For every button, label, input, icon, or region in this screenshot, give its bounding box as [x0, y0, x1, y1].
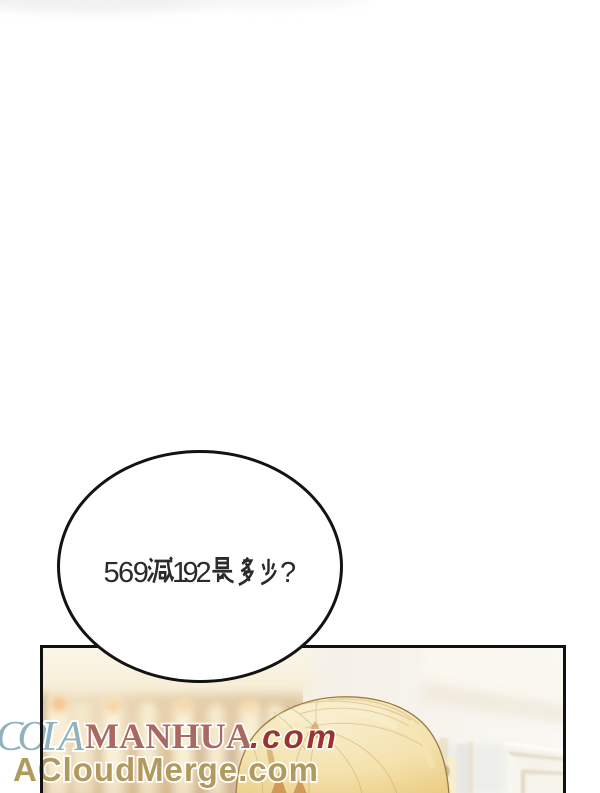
- svg-text:192: 192: [172, 557, 212, 589]
- svg-text:569: 569: [104, 557, 149, 589]
- svg-text:?: ?: [280, 557, 296, 589]
